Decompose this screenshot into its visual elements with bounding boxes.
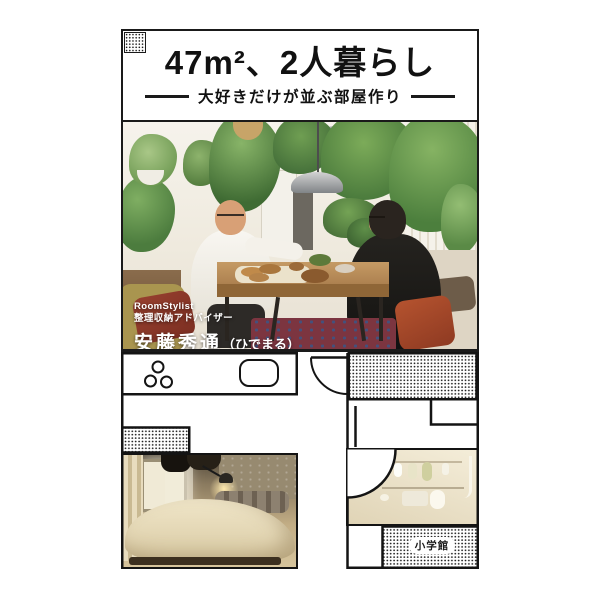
author-name-row: 安藤秀通（ひでまる） [134, 328, 300, 352]
bedroom-photo [121, 453, 298, 569]
title-rest: 、2人暮らし [246, 44, 435, 81]
towel [430, 490, 445, 509]
table-leg [379, 297, 383, 341]
author-nickname: （ひでまる） [222, 337, 300, 352]
pendant-lamp-stem [317, 122, 319, 176]
plan-closet-partition [431, 400, 478, 425]
bathroom-upper-rail [374, 461, 462, 463]
shower-hose [460, 456, 472, 498]
kitchen-sink [240, 360, 278, 386]
publisher-name: 小学館 [415, 538, 450, 553]
wall-lamp-shade [219, 473, 233, 483]
stove-burner-icon [145, 376, 156, 387]
subtitle-dash-right [411, 95, 455, 98]
book-cover: 47m²、2人暮らし 大好きだけが並ぶ部屋作り [121, 29, 479, 569]
title-box: 47m²、2人暮らし 大好きだけが並ぶ部屋作り [121, 29, 479, 122]
salad-bowl [309, 254, 331, 266]
bath-storage-box [402, 491, 428, 506]
subtitle-dash-left [145, 95, 189, 98]
floor-plan-section: 小学館 [121, 352, 479, 569]
title-number: 47 [165, 44, 204, 81]
author-role-line2: 整理収納アドバイザー [134, 313, 300, 325]
wooden-bowl [301, 269, 329, 283]
hanging-toiletry [442, 463, 449, 475]
author-role-line1: RoomStylist [134, 301, 300, 313]
stove-burner-icon [153, 362, 164, 373]
book-title: 47m²、2人暮らし [165, 46, 435, 81]
bed-frame [129, 557, 281, 565]
halftone-corner-square [124, 32, 146, 53]
person-right-glasses [369, 216, 385, 222]
hanging-toiletry [394, 463, 402, 477]
subtitle-row: 大好きだけが並ぶ部屋作り [145, 85, 455, 107]
plant-foliage [441, 184, 479, 254]
bread [249, 273, 269, 282]
hatched-area-left [122, 428, 189, 453]
hanging-loofah [422, 462, 432, 481]
soap-dish [380, 494, 389, 501]
bathroom-photo [346, 448, 479, 527]
rust-cushion [394, 294, 456, 351]
book-cover-page: 47m²、2人暮らし 大好きだけが並ぶ部屋作り [0, 0, 600, 600]
background-shelf [293, 184, 313, 250]
towel-bar [382, 487, 464, 490]
person-left-glasses [217, 214, 244, 221]
door-swing-arc [311, 358, 348, 395]
plate [335, 264, 355, 273]
publisher-badge: 小学館 [409, 537, 455, 554]
kitchen-counter [122, 353, 297, 394]
plant-foliage [121, 177, 175, 252]
hanging-toiletry [408, 463, 417, 479]
wooden-bowl [289, 262, 304, 271]
title-unit: m² [204, 44, 246, 81]
book-subtitle: 大好きだけが並ぶ部屋作り [198, 85, 402, 107]
hatched-area-top-right [349, 353, 477, 399]
dining-table-edge [217, 284, 389, 297]
author-overlay: RoomStylist 整理収納アドバイザー 安藤秀通（ひでまる） [134, 301, 300, 352]
stove-burner-icon [161, 377, 172, 388]
living-room-photo: RoomStylist 整理収納アドバイザー 安藤秀通（ひでまる） [121, 122, 479, 352]
author-name: 安藤秀通 [134, 333, 222, 352]
